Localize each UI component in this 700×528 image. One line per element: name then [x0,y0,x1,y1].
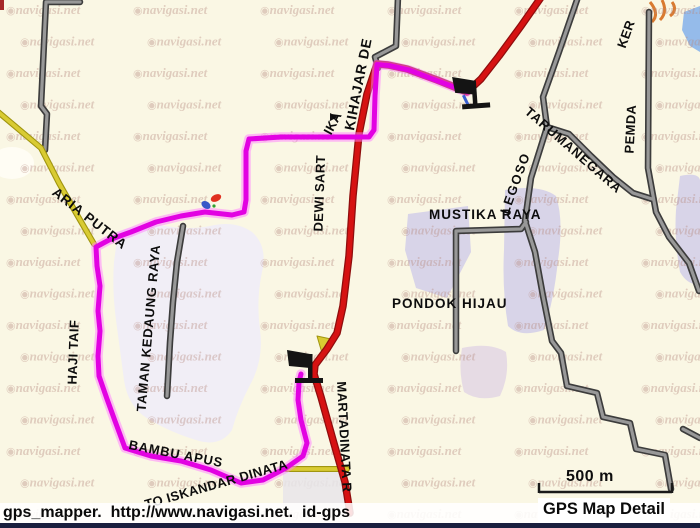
navigasi-logo-icon: ◉ [6,445,16,458]
street-label-dewi-sartika: DEWI SART [311,155,329,232]
navigasi-logo-icon: ◉ [655,288,665,301]
navigasi-logo-icon: ◉ [401,477,411,490]
navigasi-logo-icon: ◉ [260,256,270,269]
navigasi-logo-icon: ◉ [641,256,651,269]
navigasi-logo-icon: ◉ [387,445,397,458]
navigasi-logo-icon: ◉ [387,193,397,206]
navigasi-logo-icon: ◉ [20,225,30,238]
street-label-pondok-hijau: PONDOK HIJAU [392,296,508,311]
navigasi-logo-icon: ◉ [6,130,16,143]
navigasi-logo-icon: ◉ [20,477,30,490]
watermark: ◉navigasi.net [133,2,208,17]
navigasi-logo-icon: ◉ [655,414,665,427]
watermark: ◉navigasi.net [528,223,603,238]
watermark: ◉navigasi.net [401,349,476,364]
watermark: ◉navigasi.net [133,128,208,143]
navigasi-logo-icon: ◉ [133,256,143,269]
navigasi-logo-icon: ◉ [6,193,16,206]
navigasi-logo-icon: ◉ [655,351,665,364]
watermark: ◉navigasi.net [528,412,603,427]
navigasi-logo-icon: ◉ [6,382,16,395]
watermark: ◉navigasi.net [20,160,95,175]
watermark: ◉navigasi.net [401,475,476,490]
navigasi-logo-icon: ◉ [387,319,397,332]
navigasi-logo-icon: ◉ [274,225,284,238]
navigasi-logo-icon: ◉ [514,319,524,332]
navigasi-logo-icon: ◉ [514,4,524,17]
watermark: ◉navigasi.net [147,34,222,49]
navigasi-logo-icon: ◉ [274,414,284,427]
navigasi-logo-icon: ◉ [401,351,411,364]
watermark: ◉navigasi.net [655,349,700,364]
watermark: ◉navigasi.net [147,160,222,175]
watermark: ◉navigasi.net [401,160,476,175]
navigasi-logo-icon: ◉ [274,36,284,49]
navigasi-logo-icon: ◉ [401,414,411,427]
navigasi-logo-icon: ◉ [260,382,270,395]
watermark: ◉navigasi.net [260,254,335,269]
watermark: ◉navigasi.net [655,160,700,175]
navigasi-logo-icon: ◉ [260,193,270,206]
watermark: ◉navigasi.net [655,97,700,112]
watermark: ◉navigasi.net [260,2,335,17]
navigasi-logo-icon: ◉ [274,162,284,175]
map-detail-badge: GPS Map Detail [538,498,670,523]
navigasi-logo-icon: ◉ [260,4,270,17]
watermark: ◉navigasi.net [6,443,81,458]
navigasi-logo-icon: ◉ [401,99,411,112]
navigasi-logo-icon: ◉ [514,256,524,269]
watermark: ◉navigasi.net [655,412,700,427]
navigasi-logo-icon: ◉ [20,162,30,175]
watermark: ◉navigasi.net [387,317,462,332]
navigasi-logo-icon: ◉ [528,477,538,490]
watermark: ◉navigasi.net [274,160,349,175]
navigasi-logo-icon: ◉ [20,288,30,301]
navigasi-logo-icon: ◉ [147,36,157,49]
street-label-mustika-raya: MUSTIKA RAYA [429,207,542,222]
watermark: ◉navigasi.net [260,317,335,332]
navigasi-logo-icon: ◉ [274,99,284,112]
navigasi-logo-icon: ◉ [20,414,30,427]
navigasi-logo-icon: ◉ [514,130,524,143]
navigasi-logo-icon: ◉ [260,67,270,80]
watermark: ◉navigasi.net [655,34,700,49]
watermark: ◉navigasi.net [514,254,589,269]
navigasi-logo-icon: ◉ [655,477,665,490]
watermark: ◉navigasi.net [20,34,95,49]
watermark: ◉navigasi.net [401,412,476,427]
navigasi-logo-icon: ◉ [133,193,143,206]
window-bottom-edge [0,523,700,528]
watermark: ◉navigasi.net [147,349,222,364]
map-corner-artifact [0,0,4,10]
navigasi-logo-icon: ◉ [401,225,411,238]
navigasi-logo-icon: ◉ [260,319,270,332]
watermark: ◉navigasi.net [387,128,462,143]
street-label-haji-taif: HAJI TAIF [65,320,82,385]
watermark: ◉navigasi.net [514,443,589,458]
navigasi-logo-icon: ◉ [514,67,524,80]
navigasi-logo-icon: ◉ [387,382,397,395]
navigasi-logo-icon: ◉ [387,256,397,269]
watermark: ◉navigasi.net [387,380,462,395]
navigasi-logo-icon: ◉ [387,130,397,143]
navigasi-logo-icon: ◉ [133,67,143,80]
navigasi-logo-icon: ◉ [6,256,16,269]
navigasi-logo-icon: ◉ [401,162,411,175]
watermark: ◉navigasi.net [20,97,95,112]
navigasi-logo-icon: ◉ [20,36,30,49]
navigasi-logo-icon: ◉ [514,445,524,458]
navigasi-logo-icon: ◉ [147,162,157,175]
watermark: ◉navigasi.net [133,254,208,269]
navigasi-logo-icon: ◉ [641,382,651,395]
watermark: ◉navigasi.net [20,475,95,490]
navigasi-logo-icon: ◉ [528,351,538,364]
watermark: ◉navigasi.net [20,286,95,301]
watermark: ◉navigasi.net [387,191,462,206]
navigasi-logo-icon: ◉ [260,445,270,458]
navigasi-logo-icon: ◉ [20,351,30,364]
navigasi-logo-icon: ◉ [133,130,143,143]
watermark: ◉navigasi.net [260,65,335,80]
navigasi-logo-icon: ◉ [528,414,538,427]
watermark: ◉navigasi.net [20,412,95,427]
watermark: ◉navigasi.net [387,443,462,458]
watermark: ◉navigasi.net [274,286,349,301]
watermark: ◉navigasi.net [20,349,95,364]
navigasi-logo-icon: ◉ [528,288,538,301]
navigasi-logo-icon: ◉ [655,36,665,49]
watermark: ◉navigasi.net [133,65,208,80]
navigasi-logo-icon: ◉ [655,162,665,175]
navigasi-logo-icon: ◉ [401,36,411,49]
navigasi-logo-icon: ◉ [133,4,143,17]
navigasi-logo-icon: ◉ [6,4,16,17]
watermark: ◉navigasi.net [641,317,700,332]
watermark: ◉navigasi.net [655,286,700,301]
watermark: ◉navigasi.net [401,34,476,49]
navigasi-logo-icon: ◉ [6,319,16,332]
navigasi-logo-icon: ◉ [6,67,16,80]
watermark: ◉navigasi.net [274,34,349,49]
navigasi-logo-icon: ◉ [147,477,157,490]
watermark: ◉navigasi.net [147,97,222,112]
map-window: ◉navigasi.net◉navigasi.net◉navigasi.net◉… [0,0,700,528]
navigasi-logo-icon: ◉ [274,351,284,364]
navigasi-logo-icon: ◉ [20,99,30,112]
watermark: ◉navigasi.net [133,191,208,206]
navigasi-logo-icon: ◉ [147,414,157,427]
status-bar-text: gps_mapper. http://www.navigasi.net. id-… [3,504,350,522]
navigasi-logo-icon: ◉ [147,99,157,112]
navigasi-logo-icon: ◉ [514,382,524,395]
navigasi-logo-icon: ◉ [528,36,538,49]
navigasi-logo-icon: ◉ [641,319,651,332]
watermark: ◉navigasi.net [6,254,81,269]
watermark: ◉navigasi.net [147,412,222,427]
street-label-pemda: PEMDA [622,104,640,154]
watermark: ◉navigasi.net [655,475,700,490]
scale-label: 500 m [566,468,614,486]
watermark: ◉navigasi.net [274,97,349,112]
watermark: ◉navigasi.net [387,254,462,269]
watermark: ◉navigasi.net [641,380,700,395]
navigasi-logo-icon: ◉ [655,99,665,112]
navigasi-logo-icon: ◉ [274,288,284,301]
